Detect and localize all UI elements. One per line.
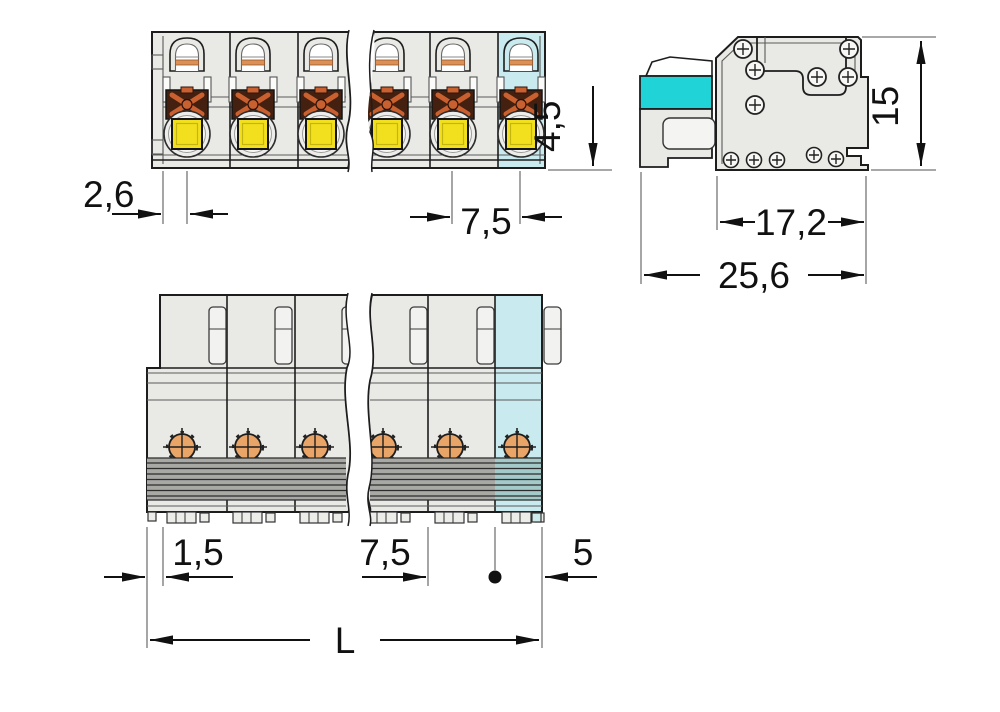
dimension-origin-dot: [489, 571, 502, 584]
pole-1: [163, 38, 211, 157]
dim-label-17-2: 17,2: [755, 202, 827, 243]
dim-side-depth-total: 25,6: [641, 172, 864, 296]
pole-5: [429, 38, 477, 157]
connector-dimensional-drawing-canvas: 2,6 7,5 4,5 15 17,2: [0, 0, 1000, 712]
dim-label-7-5-front: 7,5: [460, 201, 511, 242]
side-latch-wedge: [646, 57, 712, 76]
dim-label-2-6: 2,6: [83, 174, 134, 215]
groove-band: [147, 458, 542, 500]
dim-label-5: 5: [573, 532, 594, 573]
dim-side-height: 15: [862, 37, 936, 170]
bottom-view: [147, 293, 561, 526]
dim-label-4-5: 4,5: [527, 101, 568, 152]
dim-label-7-5-bottom: 7,5: [359, 532, 410, 573]
dim-bottom-end: 5: [542, 527, 597, 648]
dim-total-length: L: [150, 620, 539, 661]
side-view: [640, 37, 868, 170]
dim-front-entry-offset: 2,6: [83, 171, 228, 224]
dim-label-25-6: 25,6: [718, 255, 790, 296]
dim-bottom-lip: 1,5: [104, 527, 233, 648]
pole-3: [297, 38, 345, 157]
dim-bottom-pitch: 7,5: [359, 527, 501, 586]
side-turquoise-block: [640, 76, 712, 109]
pole-2: [229, 38, 277, 157]
front-view: [152, 30, 545, 172]
dim-label-1-5: 1,5: [172, 532, 223, 573]
dim-label-15: 15: [865, 86, 906, 127]
connector-dimensional-drawing: 2,6 7,5 4,5 15 17,2: [0, 0, 1000, 712]
dim-front-pitch: 7,5: [410, 171, 562, 242]
dim-label-L: L: [335, 620, 356, 661]
